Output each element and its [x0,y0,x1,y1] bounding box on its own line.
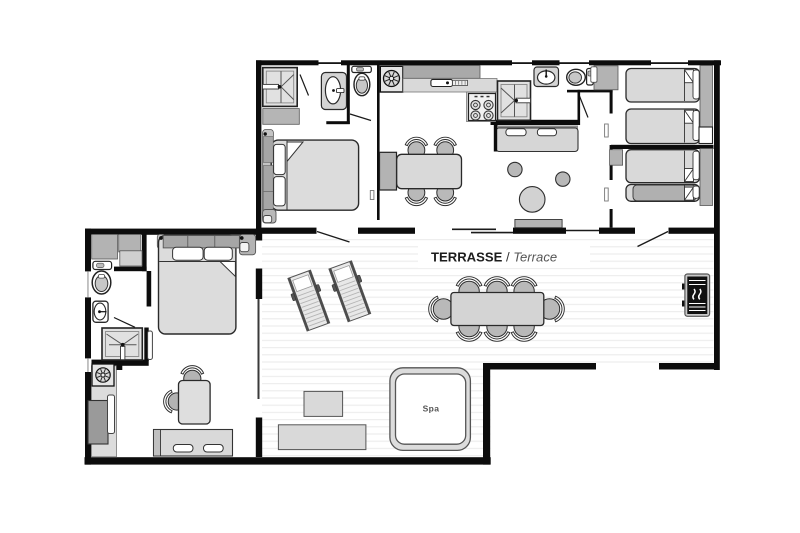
svg-text:TERRASSE / Terrace: TERRASSE / Terrace [431,250,557,265]
svg-text:Spa: Spa [423,404,440,414]
